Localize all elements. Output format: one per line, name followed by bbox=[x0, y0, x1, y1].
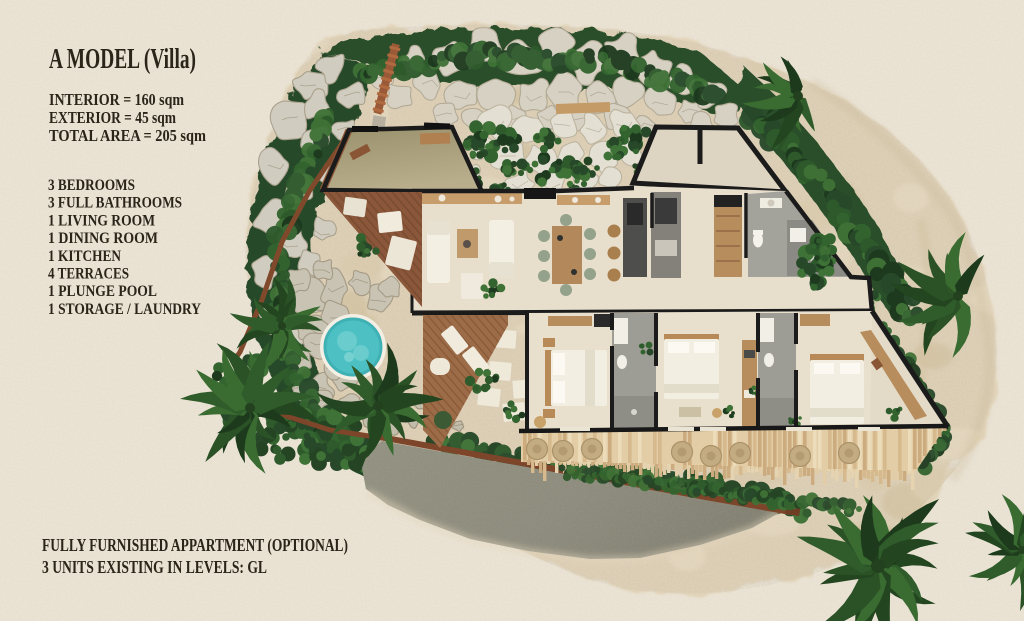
svg-text:1 STORAGE / LAUNDRY: 1 STORAGE / LAUNDRY bbox=[48, 301, 201, 318]
svg-text:FULLY FURNISHED APPARTMENT (OP: FULLY FURNISHED APPARTMENT (OPTIONAL) bbox=[42, 535, 348, 556]
svg-text:4 TERRACES: 4 TERRACES bbox=[48, 266, 129, 283]
svg-text:3 BEDROOMS: 3 BEDROOMS bbox=[48, 177, 135, 194]
svg-text:1 PLUNGE POOL: 1 PLUNGE POOL bbox=[48, 283, 157, 300]
svg-text:TOTAL AREA = 205 sqm: TOTAL AREA = 205 sqm bbox=[49, 126, 206, 145]
svg-text:INTERIOR = 160 sqm: INTERIOR = 160 sqm bbox=[49, 90, 184, 109]
svg-text:1 LIVING ROOM: 1 LIVING ROOM bbox=[48, 212, 155, 229]
svg-text:1 KITCHEN: 1 KITCHEN bbox=[48, 248, 121, 265]
svg-text:3 FULL BATHROOMS: 3 FULL BATHROOMS bbox=[48, 195, 182, 212]
svg-text:A MODEL (Villa): A MODEL (Villa) bbox=[49, 44, 196, 75]
svg-text:1 DINING ROOM: 1 DINING ROOM bbox=[48, 230, 158, 247]
svg-text:EXTERIOR = 45 sqm: EXTERIOR = 45 sqm bbox=[49, 108, 176, 127]
svg-text:3 UNITS EXISTING IN LEVELS: GL: 3 UNITS EXISTING IN LEVELS: GL bbox=[42, 557, 267, 577]
